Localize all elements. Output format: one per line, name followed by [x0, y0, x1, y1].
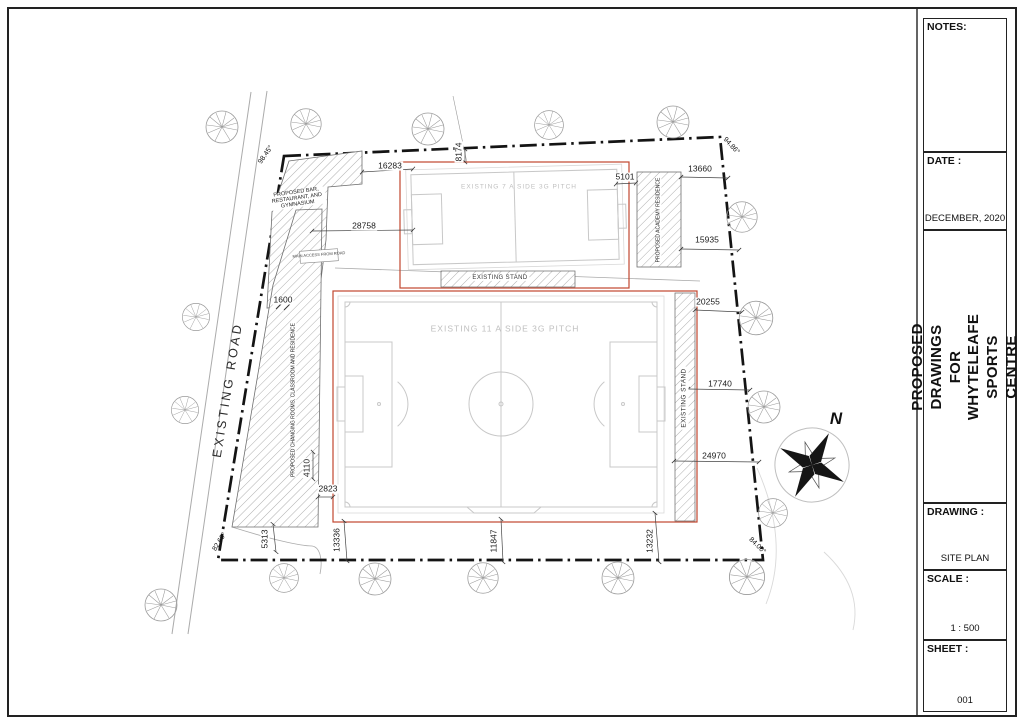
tree-icon [468, 563, 498, 593]
tree-icon [171, 396, 198, 423]
building-changing-label: PROPOSED CHANGING ROOMS, CLASSROOM AND R… [291, 323, 296, 477]
tree-icon [727, 202, 757, 232]
project-title: PROPOSED DRAWINGS FOR WHYTELEAFE SPORTS … [909, 313, 1022, 419]
dimension-16283: 16283 [377, 162, 403, 171]
scale-label: SCALE : [927, 573, 969, 585]
stand-bottom-label: EXISTING STAND [470, 275, 529, 281]
sheet-value: 001 [924, 695, 1006, 706]
drawing-sheet: EXISTING ROAD N EXISTING 7 A SIDE 3G PIT… [0, 0, 1024, 724]
date-label: DATE : [927, 155, 961, 167]
tree-icon [412, 113, 444, 145]
tree-icon [739, 301, 773, 335]
dimension-2823: 2823 [318, 485, 339, 494]
date-box: DATE : DECEMBER, 2020 [923, 152, 1007, 230]
scale-value: 1 : 500 [924, 623, 1006, 634]
tree-icon [182, 303, 209, 330]
tree-icon [270, 564, 299, 593]
notes-box: NOTES: [923, 18, 1007, 152]
building-academy-label: PROPOSED ACADEMY RESIDENCE [656, 178, 661, 263]
site-plan-canvas [0, 0, 1024, 724]
dimension-13232: 13232 [646, 528, 655, 554]
dimension-11847: 11847 [490, 528, 499, 553]
dimension-5101: 5101 [615, 173, 636, 182]
tree-icon [602, 562, 634, 594]
project-title-box: PROPOSED DRAWINGS FOR WHYTELEAFE SPORTS … [923, 230, 1007, 503]
dimension-1600: 1600 [273, 296, 294, 305]
dimension-13336: 13336 [333, 527, 342, 553]
tree-icon [729, 559, 764, 594]
tree-icon [759, 499, 788, 528]
drawing-box: DRAWING : SITE PLAN [923, 503, 1007, 570]
dimension-28758: 28758 [351, 222, 377, 231]
tree-icon [145, 589, 177, 621]
dimension-20255: 20255 [695, 298, 721, 307]
north-compass-icon [762, 415, 862, 515]
dimension-24970: 24970 [701, 452, 727, 461]
tree-icon [535, 111, 564, 140]
pitch-7-label: EXISTING 7 A SIDE 3G PITCH [461, 185, 577, 192]
notes-label: NOTES: [927, 21, 967, 33]
scale-box: SCALE : 1 : 500 [923, 570, 1007, 640]
date-value: DECEMBER, 2020 [924, 213, 1006, 224]
sheet-box: SHEET : 001 [923, 640, 1007, 712]
sheet-label: SHEET : [927, 643, 968, 655]
tree-icon [748, 391, 780, 423]
pitch-7-markings [403, 164, 628, 270]
tree-icon [291, 109, 321, 139]
north-label: N [830, 410, 842, 428]
dimension-5313: 5313 [261, 529, 270, 550]
dimension-8174: 8174 [455, 142, 464, 163]
existing-road [172, 91, 267, 634]
tree-icon [206, 111, 238, 143]
drawing-label: DRAWING : [927, 506, 984, 518]
stand-right-label: EXISTING STAND [682, 366, 689, 429]
tree-icon [359, 563, 391, 595]
sheet-border [8, 8, 1016, 716]
dimension-13660: 13660 [687, 165, 713, 174]
dimension-4110: 4110 [303, 458, 312, 478]
dimension-15935: 15935 [694, 236, 720, 245]
dimension-17740: 17740 [707, 380, 733, 389]
drawing-value: SITE PLAN [924, 553, 1006, 564]
pitch-11-label: EXISTING 11 A SIDE 3G PITCH [431, 325, 580, 334]
tree-icon [657, 106, 689, 138]
